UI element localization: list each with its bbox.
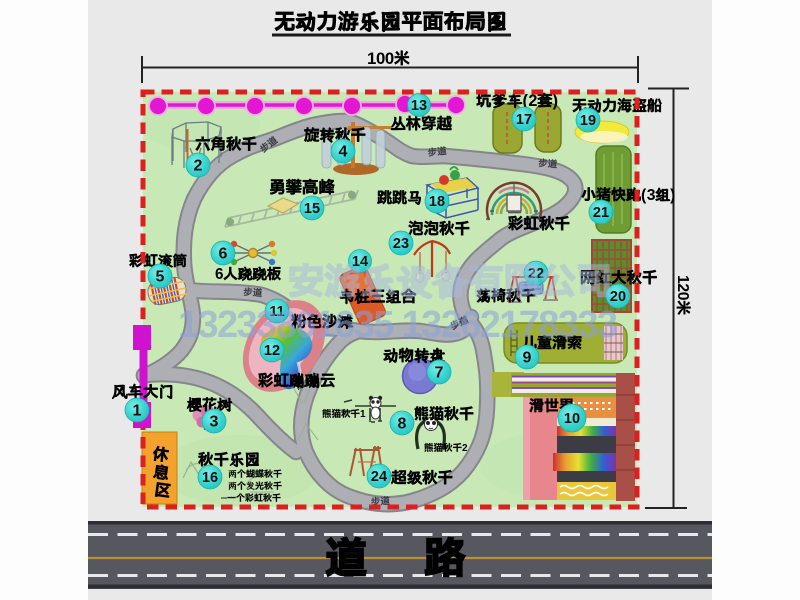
svg-text:19: 19	[580, 113, 596, 129]
svg-text:6: 6	[215, 266, 223, 283]
svg-text:7: 7	[435, 365, 444, 382]
svg-text:18: 18	[429, 194, 445, 210]
svg-text:15: 15	[304, 201, 320, 217]
svg-text:17: 17	[516, 112, 532, 128]
svg-text:0: 0	[385, 49, 394, 68]
svg-text:3: 3	[647, 187, 656, 204]
svg-text:8: 8	[398, 416, 407, 433]
svg-text:1: 1	[674, 275, 691, 284]
svg-text:3: 3	[210, 414, 219, 431]
svg-text:9: 9	[523, 350, 532, 367]
svg-text:24: 24	[371, 469, 387, 485]
svg-text:21: 21	[593, 205, 609, 221]
svg-text:1: 1	[360, 409, 366, 420]
svg-text:0: 0	[674, 292, 691, 301]
svg-text:23: 23	[393, 236, 409, 252]
svg-text:2: 2	[674, 283, 691, 292]
svg-text:13233861635 13262178333: 13233861635 13262178333	[178, 304, 618, 346]
svg-text:10: 10	[564, 411, 580, 427]
svg-text:1: 1	[367, 49, 376, 68]
svg-text:2: 2	[528, 92, 537, 110]
svg-text:2: 2	[462, 443, 468, 454]
svg-text:0: 0	[376, 49, 385, 68]
svg-text:13: 13	[411, 98, 427, 114]
svg-text:1: 1	[133, 403, 142, 420]
svg-text:): )	[670, 187, 675, 204]
svg-text:6: 6	[219, 246, 228, 263]
svg-text:(: (	[641, 187, 647, 204]
svg-text:): )	[553, 92, 558, 110]
svg-text:4: 4	[339, 144, 348, 161]
svg-text:2: 2	[194, 158, 203, 175]
svg-text:5: 5	[156, 269, 165, 286]
svg-text:20: 20	[610, 289, 626, 305]
svg-text:16: 16	[202, 470, 218, 486]
